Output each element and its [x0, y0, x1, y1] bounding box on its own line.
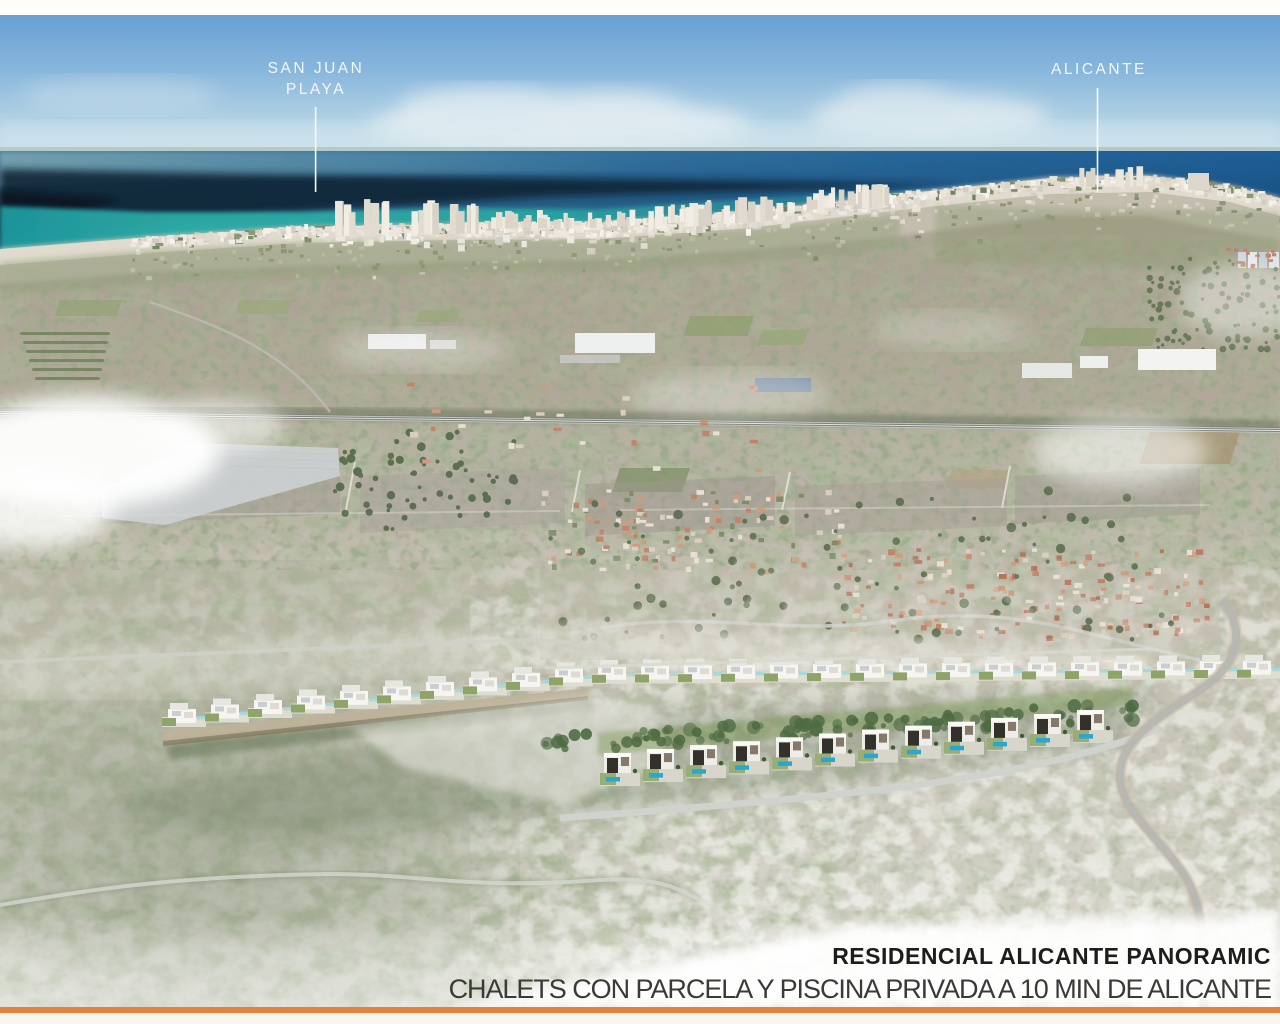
svg-text:SAN JUAN: SAN JUAN: [268, 60, 365, 77]
svg-text:PLAYA: PLAYA: [286, 81, 346, 98]
svg-text:CHALETS CON PARCELA Y PISCINA: CHALETS CON PARCELA Y PISCINA PRIVADA A …: [449, 974, 1271, 1004]
svg-text:RESIDENCIAL ALICANTE PANORAMIC: RESIDENCIAL ALICANTE PANORAMIC: [832, 943, 1271, 969]
svg-text:ALICANTE: ALICANTE: [1051, 61, 1147, 78]
